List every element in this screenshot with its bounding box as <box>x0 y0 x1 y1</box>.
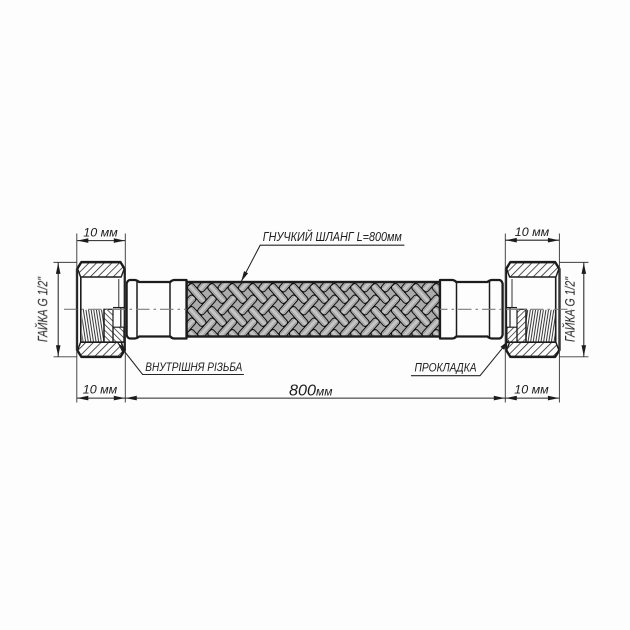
svg-text:10 мм: 10 мм <box>83 226 118 240</box>
svg-text:ГАЙКА G 1/2": ГАЙКА G 1/2" <box>562 276 578 342</box>
svg-text:ВНУТРІШНЯ РІЗЬБА: ВНУТРІШНЯ РІЗЬБА <box>145 360 242 374</box>
svg-text:10 мм: 10 мм <box>515 225 550 239</box>
svg-text:10 мм: 10 мм <box>83 383 118 397</box>
svg-text:ПРОКЛАДКА: ПРОКЛАДКА <box>414 360 476 374</box>
svg-text:ГНУЧКИЙ ШЛАНГ L=800мм: ГНУЧКИЙ ШЛАНГ L=800мм <box>263 228 402 244</box>
svg-text:10 мм: 10 мм <box>514 383 549 397</box>
svg-text:ГАЙКА G 1/2": ГАЙКА G 1/2" <box>34 276 50 342</box>
